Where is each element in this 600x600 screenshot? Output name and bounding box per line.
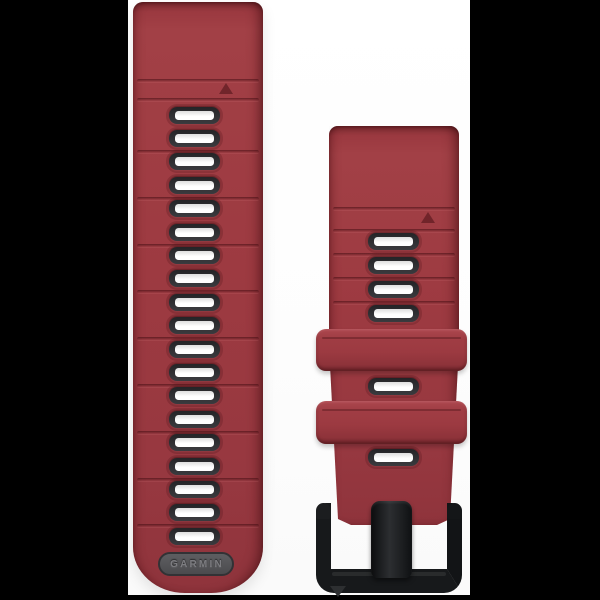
band-hole	[169, 270, 220, 287]
buckle-arm-cap-left	[316, 503, 331, 519]
product-photo: GARMIN	[0, 0, 600, 600]
band-hole	[169, 200, 220, 217]
left-strap: GARMIN	[133, 2, 263, 593]
buckle-arm-cap-right	[447, 503, 462, 519]
right-strap	[329, 126, 459, 525]
keeper-loop-1	[316, 329, 467, 371]
band-hole	[169, 130, 220, 147]
band-hole	[169, 224, 220, 241]
band-hole	[169, 341, 220, 358]
garmin-logo-badge: GARMIN	[158, 552, 234, 576]
band-hole	[169, 504, 220, 521]
band-hole	[368, 305, 419, 322]
ridge-groove	[333, 207, 455, 211]
watermark-triangle-icon	[330, 586, 346, 597]
band-hole	[169, 528, 220, 545]
band-hole	[368, 257, 419, 274]
band-hole	[169, 177, 220, 194]
band-hole	[169, 107, 220, 124]
band-hole	[368, 378, 419, 395]
band-hole	[169, 458, 220, 475]
alignment-triangle-icon	[421, 212, 435, 223]
ridge-groove	[137, 98, 259, 102]
band-hole	[368, 449, 419, 466]
band-hole	[368, 233, 419, 250]
band-hole	[169, 387, 220, 404]
band-hole	[169, 481, 220, 498]
band-hole	[169, 153, 220, 170]
buckle-prong	[371, 501, 412, 578]
garmin-logo-text: GARMIN	[170, 559, 224, 570]
band-hole	[169, 317, 220, 334]
ridge-groove	[137, 79, 259, 83]
band-hole	[169, 411, 220, 428]
band-hole	[169, 247, 220, 264]
band-hole	[169, 434, 220, 451]
band-hole	[169, 364, 220, 381]
band-hole	[169, 294, 220, 311]
keeper-loop-2	[316, 401, 467, 444]
band-hole	[368, 281, 419, 298]
alignment-triangle-icon	[219, 83, 233, 94]
